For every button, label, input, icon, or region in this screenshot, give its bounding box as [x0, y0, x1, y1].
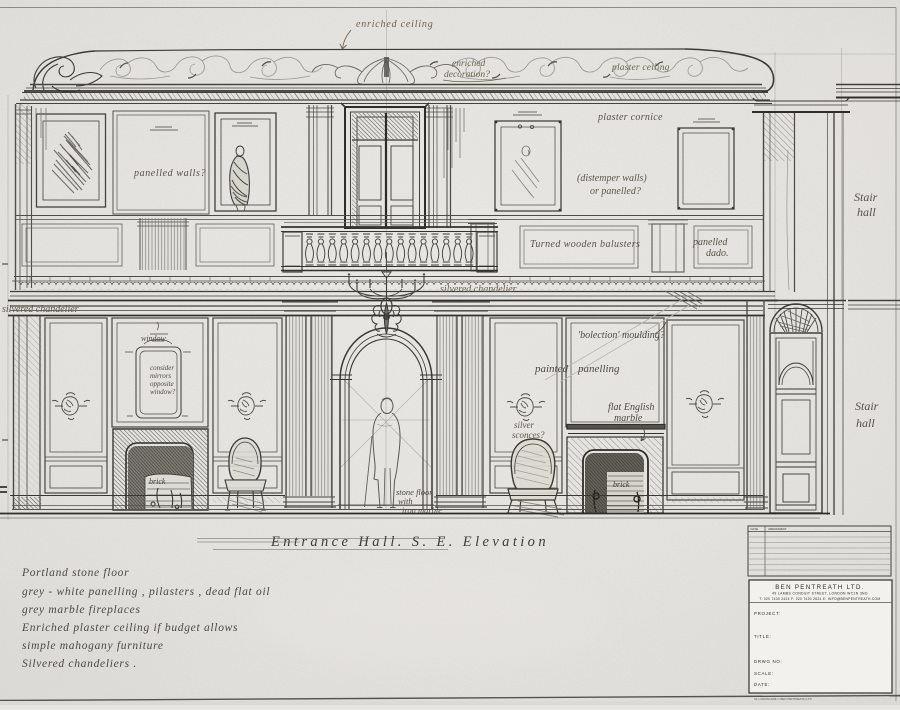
svg-text:window?: window? [150, 388, 176, 396]
svg-text:silvered chandelier: silvered chandelier [2, 304, 79, 315]
svg-text:mirrors: mirrors [150, 372, 171, 380]
svg-text:marble: marble [614, 413, 643, 424]
svg-text:Silvered chandeliers .: Silvered chandeliers . [22, 658, 137, 670]
svg-text:iron marble: iron marble [402, 505, 442, 515]
svg-text:DRWG NO:: DRWG NO: [754, 659, 782, 664]
svg-text:T: 020 7430 2424 F: 020 7430: T: 020 7430 2424 F: 020 7430 2624 E: INF… [760, 597, 881, 601]
svg-text:TITLE:: TITLE: [754, 634, 771, 639]
svg-text:PROJECT:: PROJECT: [754, 611, 781, 616]
svg-text:A1 LANDSCAPE C BEN PENTREATH: A1 LANDSCAPE C BEN PENTREATH LTD [754, 697, 813, 701]
svg-text:grey marble fireplaces: grey marble fireplaces [22, 604, 141, 616]
svg-text:Enriched plaster ceiling if: Enriched plaster ceiling if budget allow… [21, 622, 238, 634]
svg-text:grey - white panelling , pil: grey - white panelling , pilasters , dea… [22, 586, 270, 598]
svg-text:simple mahogany furniture: simple mahogany furniture [22, 640, 164, 652]
svg-text:decoration?: decoration? [444, 70, 490, 80]
svg-text:consider: consider [150, 364, 174, 372]
svg-text:plaster ceiling: plaster ceiling [611, 63, 670, 73]
svg-text:Turned wooden balusters: Turned wooden balusters [530, 239, 640, 250]
svg-text:Entrance Hall. S. E. Eleva: Entrance Hall. S. E. Elevation [270, 534, 549, 550]
svg-text:DATE:: DATE: [754, 682, 770, 687]
svg-text:Portland stone floor: Portland stone floor [21, 567, 129, 579]
svg-text:sconces?: sconces? [512, 430, 545, 440]
svg-text:hall: hall [857, 205, 876, 219]
svg-text:SCALE:: SCALE: [754, 671, 774, 676]
svg-text:49 LAMBS CONDUIT STREET, LONDO: 49 LAMBS CONDUIT STREET, LONDON WC1N 3NG [772, 592, 868, 596]
svg-text:dado.: dado. [706, 248, 729, 259]
svg-text:silvered chandelier: silvered chandelier [440, 284, 517, 295]
svg-text:opposite: opposite [150, 380, 174, 388]
svg-text:enriched ceiling: enriched ceiling [356, 19, 434, 30]
svg-text:silver: silver [514, 420, 534, 430]
svg-text:BEN PENTREATH LTD.: BEN PENTREATH LTD. [775, 584, 865, 591]
svg-text:brick: brick [149, 477, 166, 486]
svg-text:plaster cornice: plaster cornice [597, 112, 663, 123]
svg-text:AMENDMENT: AMENDMENT [768, 527, 787, 531]
svg-text:painted: painted [534, 363, 568, 375]
svg-text:panelled: panelled [692, 237, 728, 248]
svg-text:hall: hall [856, 416, 875, 430]
svg-text:panelled walls?: panelled walls? [133, 168, 206, 179]
svg-text:or panelled?: or panelled? [590, 186, 641, 197]
svg-text:DATE: DATE [751, 527, 759, 531]
svg-text:window: window [141, 334, 167, 343]
svg-text:Stair: Stair [855, 399, 879, 413]
svg-text:brick: brick [613, 480, 630, 489]
svg-text:Stair: Stair [854, 190, 878, 204]
svg-text:(distemper walls): (distemper walls) [577, 173, 647, 184]
svg-text:flat English: flat English [608, 402, 654, 413]
svg-text:enriched: enriched [452, 59, 485, 69]
svg-text:'bolection' moulding?: 'bolection' moulding? [578, 330, 665, 341]
svg-text:panelling: panelling [577, 363, 620, 375]
